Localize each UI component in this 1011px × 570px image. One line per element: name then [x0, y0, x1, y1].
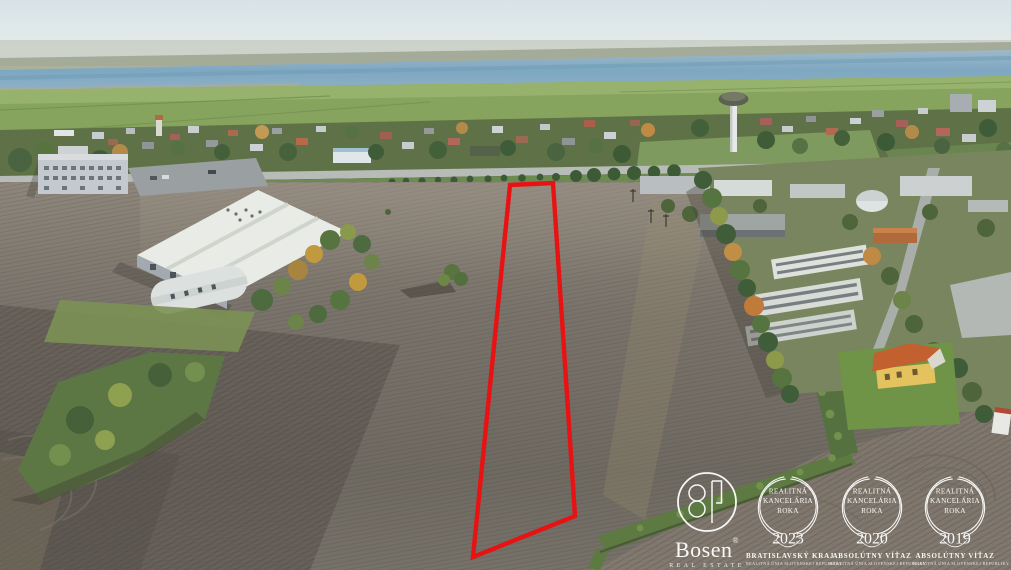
award-winner-label: BRATISLAVSKÝ KRAJ	[746, 552, 830, 560]
award-winner-label: ABSOLÚTNY VÍŤAZ	[830, 552, 914, 560]
award-org-label: REALITNÁ ÚNIA SLOVENSKEJ REPUBLIKY	[746, 561, 830, 566]
svg-text:ROKA: ROKA	[777, 507, 799, 515]
brand-subtitle: REAL ESTATE	[660, 563, 754, 569]
award-year: 2019	[939, 530, 971, 547]
brand-name: Bosen®	[660, 537, 754, 561]
svg-text:KANCELÁRIA: KANCELÁRIA	[930, 495, 980, 505]
svg-text:REALITNÁ: REALITNÁ	[769, 486, 808, 496]
registered-mark: ®	[732, 536, 739, 545]
bosen-monogram-icon	[675, 470, 739, 534]
svg-text:ROKA: ROKA	[944, 507, 966, 515]
award-year: 2020	[856, 530, 888, 547]
svg-text:ROKA: ROKA	[861, 507, 883, 515]
svg-text:REALITNÁ: REALITNÁ	[853, 486, 892, 496]
award-year: 2023	[772, 530, 804, 547]
laurel-wreath-icon: REALITNÁ KANCELÁRIA ROKA 2019	[917, 472, 993, 551]
laurel-wreath-icon: REALITNÁ KANCELÁRIA ROKA 2023	[750, 472, 826, 551]
svg-text:KANCELÁRIA: KANCELÁRIA	[847, 495, 897, 505]
laurel-wreath-icon: REALITNÁ KANCELÁRIA ROKA 2020	[834, 472, 910, 551]
award-winner-label: ABSOLÚTNY VÍŤAZ	[913, 552, 997, 560]
svg-text:KANCELÁRIA: KANCELÁRIA	[763, 495, 813, 505]
real-estate-listing-photo: Bosen® REAL ESTATE REALITNÁ KANCELÁRIA R…	[0, 0, 1011, 570]
award-badge-2020: REALITNÁ KANCELÁRIA ROKA 2020 ABSOLÚTNY …	[830, 472, 914, 566]
award-org-label: REALITNÁ ÚNIA SLOVENSKEJ REPUBLIKY	[830, 561, 914, 566]
bosen-logo: Bosen® REAL ESTATE	[660, 466, 754, 569]
award-org-label: REALITNÁ ÚNIA SLOVENSKEJ REPUBLIKY	[913, 561, 997, 566]
award-badge-2023: REALITNÁ KANCELÁRIA ROKA 2023 BRATISLAVS…	[746, 472, 830, 566]
award-badge-2019: REALITNÁ KANCELÁRIA ROKA 2019 ABSOLÚTNY …	[913, 472, 997, 566]
svg-text:REALITNÁ: REALITNÁ	[936, 486, 975, 496]
